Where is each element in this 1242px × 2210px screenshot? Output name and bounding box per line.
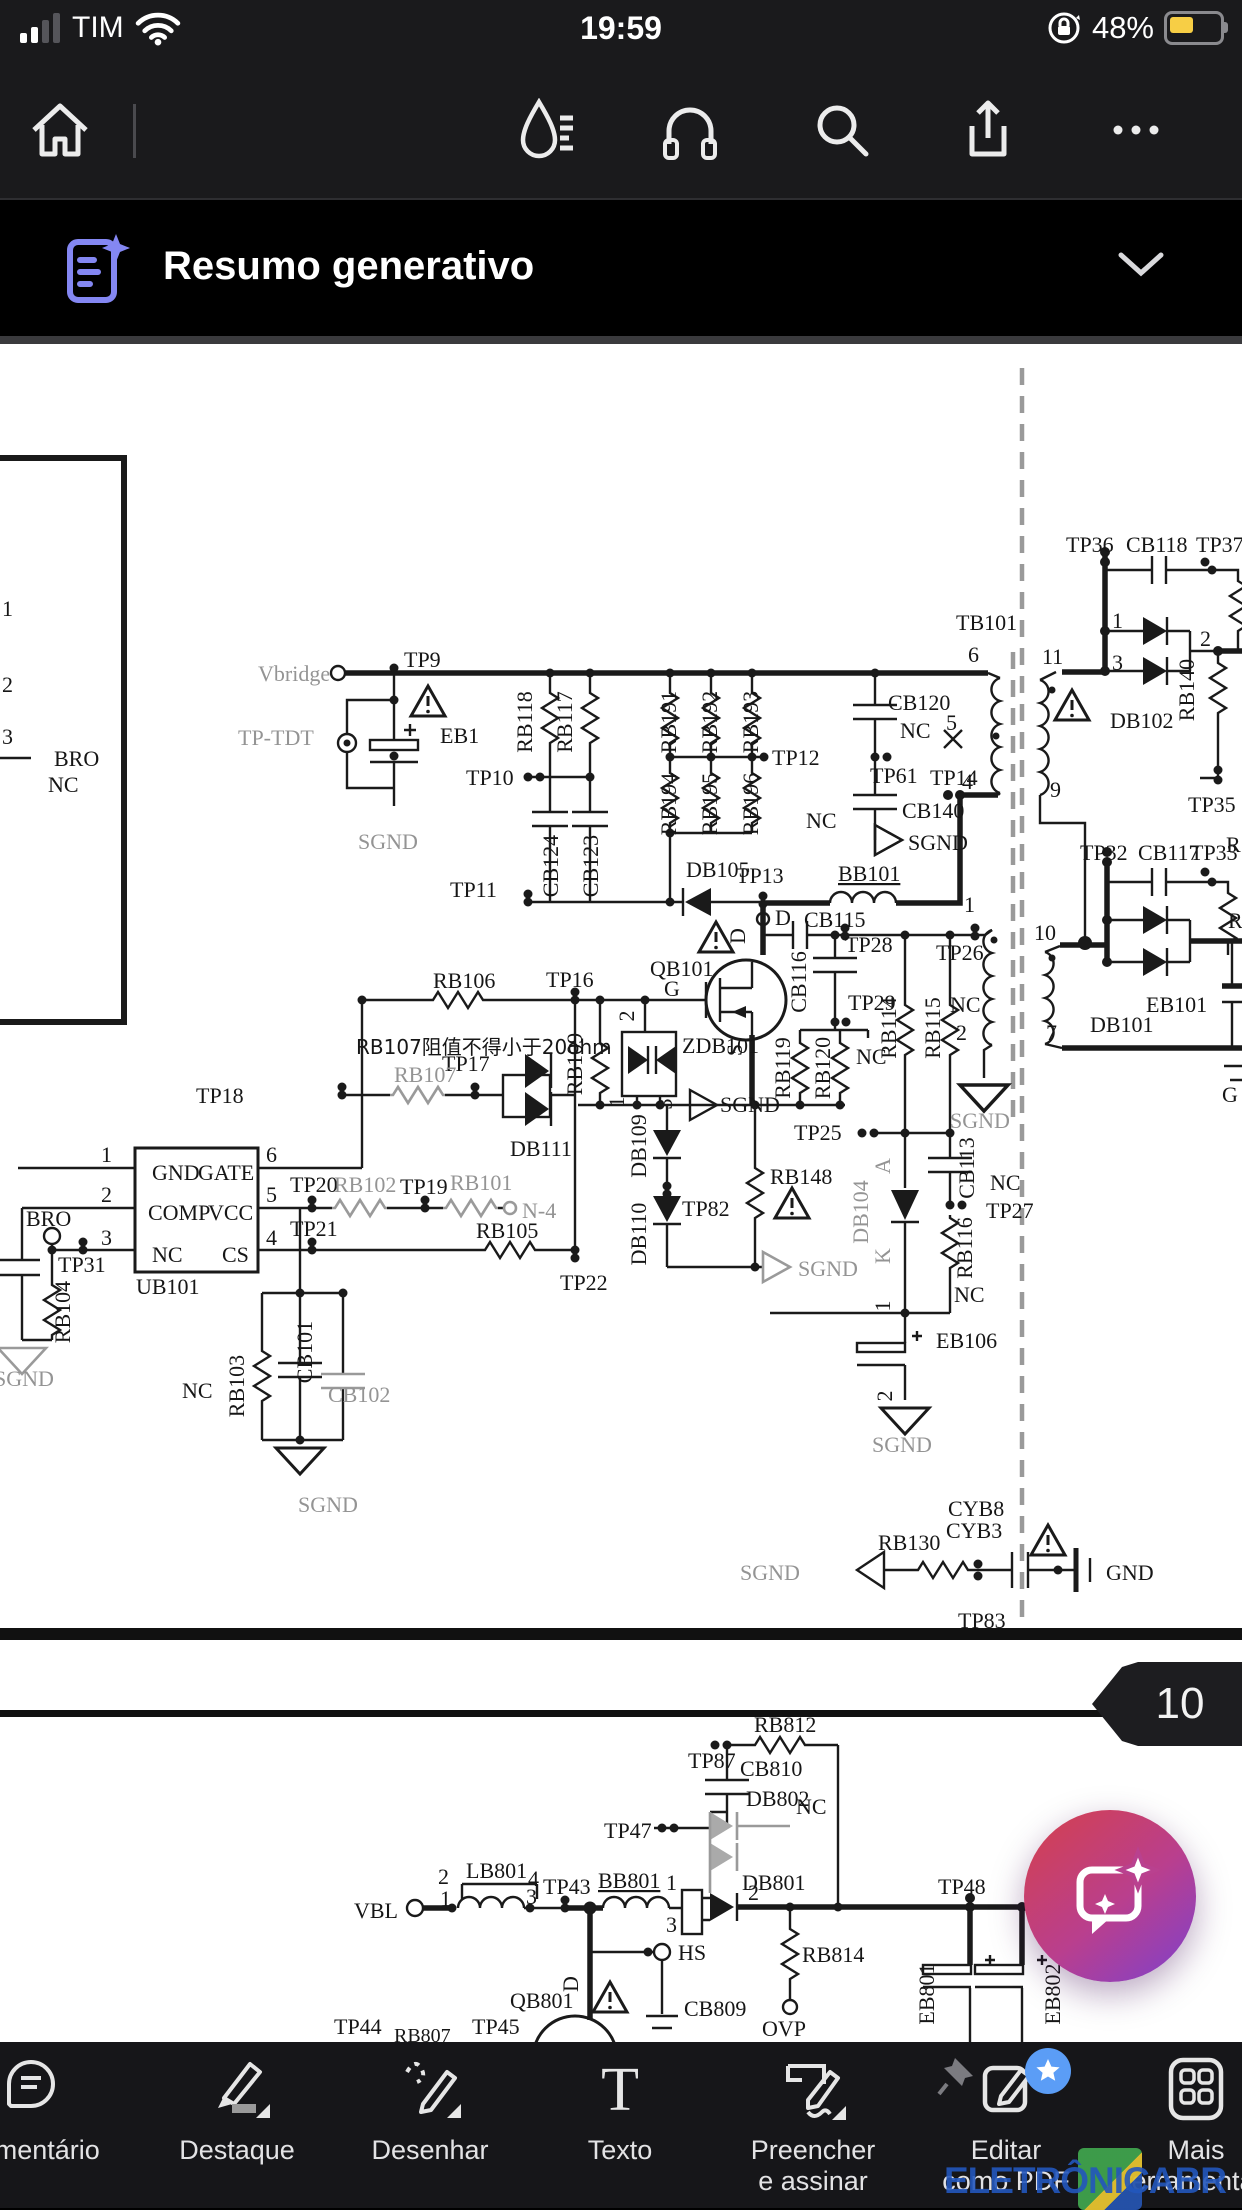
battery-icon bbox=[1164, 11, 1224, 45]
status-bar: TIM 19:59 48% bbox=[0, 0, 1242, 62]
component-label: RB117 bbox=[552, 691, 577, 753]
component-label: SGND bbox=[798, 1256, 858, 1281]
component-label: 1 bbox=[2, 596, 13, 621]
component-label: TP22 bbox=[560, 1270, 608, 1295]
fill-sign-icon bbox=[778, 2052, 848, 2128]
component-label: Vbridge bbox=[258, 661, 330, 686]
component-label: G bbox=[664, 976, 680, 1001]
home-icon[interactable] bbox=[28, 98, 92, 162]
component-label: 1 bbox=[870, 1301, 895, 1312]
component-label: G bbox=[1222, 1082, 1238, 1107]
component-label: TP16 bbox=[546, 967, 594, 992]
more-icon[interactable] bbox=[1104, 98, 1168, 162]
component-label: TP21 bbox=[290, 1216, 338, 1241]
component-label: NC bbox=[48, 772, 79, 797]
page-number: 10 bbox=[1156, 1679, 1205, 1729]
component-label: SGND bbox=[298, 1492, 358, 1517]
component-label: D bbox=[558, 1976, 583, 1992]
top-toolbar bbox=[0, 62, 1242, 198]
component-label: S bbox=[722, 1044, 747, 1056]
tool-label: Texto bbox=[525, 2135, 715, 2166]
component-label: TP28 bbox=[845, 932, 893, 957]
component-label: 11 bbox=[1042, 644, 1063, 669]
search-icon[interactable] bbox=[810, 98, 874, 162]
component-label: VBL bbox=[354, 1898, 398, 1923]
component-label: TP87 bbox=[688, 1748, 736, 1773]
component-label: TP44 bbox=[334, 2014, 382, 2039]
component-label: 2 bbox=[101, 1182, 112, 1207]
svg-text:T: T bbox=[601, 2056, 639, 2124]
component-label: TP83 bbox=[958, 1608, 1006, 1633]
component-label: TP31 bbox=[58, 1252, 106, 1277]
component-label: BRO bbox=[54, 746, 99, 771]
component-label: TP45 bbox=[472, 2014, 520, 2039]
component-label: CB809 bbox=[684, 1996, 746, 2021]
component-label: 1 bbox=[1112, 608, 1123, 633]
component-label: RB191 bbox=[656, 691, 681, 753]
component-label: TP43 bbox=[543, 1874, 591, 1899]
tool-comment[interactable]: Comentário bbox=[0, 2052, 125, 2166]
component-label: 1 bbox=[666, 1870, 677, 1895]
tool-fill-sign[interactable]: Preencher e assinar bbox=[718, 2052, 908, 2197]
component-label: DB111 bbox=[510, 1136, 572, 1161]
component-label: 3 bbox=[526, 1884, 537, 1909]
component-label: RB104 bbox=[50, 1281, 75, 1343]
component-label: 4 bbox=[962, 769, 973, 794]
component-label: RB148 bbox=[770, 1164, 832, 1189]
component-label: TP32 bbox=[1080, 840, 1128, 865]
component-label: 6 bbox=[968, 642, 979, 667]
component-label: BRO bbox=[26, 1206, 71, 1231]
generative-summary-icon bbox=[62, 232, 134, 308]
component-label: RB195 bbox=[697, 773, 722, 835]
component-label: RB103 bbox=[224, 1355, 249, 1417]
liquid-mode-icon[interactable] bbox=[514, 98, 578, 162]
more-tools-grid-icon bbox=[1161, 2052, 1231, 2128]
component-label: DB101 bbox=[1090, 1012, 1154, 1037]
component-label: CB115 bbox=[804, 907, 866, 932]
tool-text[interactable]: T Texto bbox=[525, 2052, 715, 2166]
component-label: SGND bbox=[358, 829, 418, 854]
component-label: OVP bbox=[762, 2016, 806, 2041]
component-label: D bbox=[725, 928, 750, 944]
watermark-text: ELETRÔNICABR bbox=[944, 2160, 1226, 2202]
component-label: D bbox=[775, 905, 791, 930]
component-label: RB101 bbox=[450, 1170, 512, 1195]
component-label: RB812 bbox=[754, 1712, 816, 1737]
component-label: RB116 bbox=[952, 1217, 977, 1279]
component-label: RB807 bbox=[394, 2025, 451, 2042]
generative-summary-banner[interactable]: Resumo generativo bbox=[0, 198, 1242, 336]
component-label: 5 bbox=[946, 710, 957, 735]
component-label: EB101 bbox=[1146, 992, 1207, 1017]
component-label: RB193 bbox=[738, 691, 763, 753]
tool-draw[interactable]: Desenhar bbox=[335, 2052, 525, 2166]
component-label: RB196 bbox=[738, 773, 763, 835]
component-label: RB114 bbox=[876, 997, 901, 1059]
page2-border bbox=[0, 1710, 1242, 1717]
highlighter-icon bbox=[202, 2052, 272, 2128]
component-label: NC bbox=[182, 1378, 213, 1403]
component-label: ZDB101 bbox=[682, 1033, 759, 1058]
component-label: SGND bbox=[908, 830, 968, 855]
component-label: TP48 bbox=[938, 1874, 986, 1899]
component-label: TP27 bbox=[986, 1198, 1034, 1223]
page1-border bbox=[0, 1628, 1242, 1640]
tool-label: Desenhar bbox=[335, 2135, 525, 2166]
component-label: NC bbox=[900, 718, 931, 743]
component-label: GND bbox=[152, 1160, 200, 1185]
component-label: CB118 bbox=[1126, 532, 1188, 557]
component-label: CB810 bbox=[740, 1756, 802, 1781]
component-label: TP20 bbox=[290, 1172, 338, 1197]
component-label: NC bbox=[806, 808, 837, 833]
banner-divider bbox=[0, 336, 1242, 344]
component-label: 2 bbox=[614, 1011, 639, 1022]
component-label: 1 bbox=[604, 1097, 629, 1108]
component-label: CB113 bbox=[954, 1137, 979, 1199]
component-label: SGND bbox=[740, 1560, 800, 1585]
component-label: SGND bbox=[950, 1108, 1010, 1133]
component-label: CB101 bbox=[292, 1321, 317, 1383]
component-label: TP35 bbox=[1188, 792, 1236, 817]
tool-highlight[interactable]: Destaque bbox=[142, 2052, 332, 2166]
component-label: 2 bbox=[748, 1880, 759, 1905]
component-label: TP11 bbox=[450, 877, 497, 902]
component-label: TP9 bbox=[404, 647, 441, 672]
component-label: K bbox=[870, 1248, 895, 1264]
component-label: TP82 bbox=[682, 1196, 730, 1221]
comment-icon bbox=[0, 2052, 65, 2128]
component-label: LB801 bbox=[466, 1858, 527, 1883]
component-label: CB140 bbox=[902, 798, 964, 823]
component-label: UB101 bbox=[136, 1274, 200, 1299]
rotation-lock-icon bbox=[1046, 10, 1082, 46]
component-label: 4 bbox=[266, 1225, 277, 1250]
component-label: TP10 bbox=[466, 765, 514, 790]
component-label: 3 bbox=[1112, 650, 1123, 675]
ai-chat-sparkle-icon bbox=[1058, 1844, 1162, 1948]
component-label: TP37 bbox=[1196, 532, 1242, 557]
component-label: RB194 bbox=[656, 773, 681, 835]
component-label: RB105 bbox=[476, 1218, 538, 1243]
component-label: EB1 bbox=[440, 723, 479, 748]
pin-icon bbox=[937, 2054, 977, 2096]
tool-label: Destaque bbox=[142, 2135, 332, 2166]
component-label: RB102 bbox=[334, 1172, 396, 1197]
component-label: RB140 bbox=[1174, 659, 1199, 721]
component-label: TP13 bbox=[736, 863, 784, 888]
text-icon: T bbox=[585, 2052, 655, 2128]
component-label: RB192 bbox=[697, 691, 722, 753]
component-label: DB104 bbox=[848, 1180, 873, 1244]
component-label: 3 bbox=[101, 1225, 112, 1250]
tool-label-line2: e assinar bbox=[718, 2166, 908, 2197]
app-screen: { "status_bar": {"carrier": "TIM", "time… bbox=[0, 0, 1242, 2208]
battery-percent: 48% bbox=[1092, 10, 1154, 46]
component-label: 3 bbox=[652, 1099, 677, 1110]
component-label: R bbox=[1226, 832, 1241, 857]
component-label: A bbox=[870, 1158, 895, 1174]
tool-label: Comentário bbox=[0, 2135, 125, 2166]
component-label: HS bbox=[678, 1940, 706, 1965]
component-label: 2 bbox=[2, 672, 13, 697]
component-label: BB101 bbox=[838, 861, 900, 886]
component-label: SGND bbox=[872, 1432, 932, 1457]
component-label: CB120 bbox=[888, 690, 950, 715]
component-label: NC bbox=[990, 1170, 1021, 1195]
component-label: TP12 bbox=[772, 745, 820, 770]
component-label: 2 bbox=[1200, 626, 1211, 651]
share-icon[interactable] bbox=[956, 98, 1020, 162]
component-label: NC bbox=[796, 1794, 827, 1819]
component-label: 2 bbox=[956, 1020, 967, 1045]
component-label: RB106 bbox=[433, 968, 495, 993]
component-label: 9 bbox=[1050, 777, 1061, 802]
pdf-schematic-page[interactable]: VbridgeTP9TP-TDTEB1SGNDRB118RB117TP10CB1… bbox=[0, 344, 1242, 2042]
component-label: CB102 bbox=[328, 1382, 390, 1407]
component-label: CB124 bbox=[538, 835, 563, 897]
component-label: 7 bbox=[1046, 1020, 1057, 1045]
component-label: CB123 bbox=[578, 835, 603, 897]
component-label: 6 bbox=[266, 1142, 277, 1167]
component-label: NC bbox=[954, 1282, 985, 1307]
component-label: DB102 bbox=[1110, 708, 1174, 733]
component-label: 10 bbox=[1034, 920, 1056, 945]
component-label: TP18 bbox=[196, 1083, 244, 1108]
component-label: DB110 bbox=[626, 1203, 651, 1266]
component-label: TP19 bbox=[400, 1174, 448, 1199]
component-label: EB106 bbox=[936, 1328, 997, 1353]
component-label: RB119 bbox=[770, 1037, 795, 1099]
component-label: RB107 bbox=[394, 1062, 456, 1087]
premium-star-badge bbox=[1025, 2048, 1071, 2094]
component-label: TP26 bbox=[936, 940, 984, 965]
component-label: TP-TDT bbox=[238, 725, 314, 750]
pdf-paper bbox=[0, 344, 1242, 2042]
component-label: RB115 bbox=[920, 997, 945, 1059]
chevron-down-icon[interactable] bbox=[1118, 252, 1164, 278]
component-label: 3 bbox=[666, 1912, 677, 1937]
component-label: 1 bbox=[440, 1886, 451, 1911]
component-label: TP47 bbox=[604, 1818, 652, 1843]
component-label: DB109 bbox=[626, 1114, 651, 1178]
component-label: GND bbox=[1106, 1560, 1154, 1585]
component-label: RB814 bbox=[802, 1942, 864, 1967]
component-label: 2 bbox=[872, 1391, 897, 1402]
component-label: TB101 bbox=[956, 610, 1017, 635]
component-label: SGND bbox=[0, 1366, 54, 1391]
toolbar-divider bbox=[133, 104, 136, 158]
component-label: EB801 bbox=[914, 1963, 939, 2024]
component-label: RB109 bbox=[562, 1033, 587, 1095]
pencil-draw-icon bbox=[395, 2052, 465, 2128]
component-label: TP61 bbox=[870, 763, 918, 788]
component-label: RB120 bbox=[810, 1037, 835, 1099]
component-label: COMP bbox=[148, 1200, 210, 1225]
component-label: 3 bbox=[2, 724, 13, 749]
component-label: NC bbox=[152, 1242, 183, 1267]
component-label: CYB3 bbox=[946, 1518, 1002, 1543]
component-label: GATE bbox=[198, 1160, 254, 1185]
component-label: CB116 bbox=[786, 951, 811, 1013]
component-label: R bbox=[1228, 908, 1242, 933]
component-label: BB801 bbox=[598, 1868, 660, 1893]
tool-label: Preencher bbox=[718, 2135, 908, 2166]
ai-assistant-fab[interactable] bbox=[1024, 1810, 1196, 1982]
read-aloud-icon[interactable] bbox=[658, 98, 722, 162]
component-label: 5 bbox=[266, 1182, 277, 1207]
banner-title: Resumo generativo bbox=[163, 244, 534, 289]
component-label: QB101 bbox=[650, 956, 714, 981]
component-label: RB130 bbox=[878, 1530, 940, 1555]
component-label: TP25 bbox=[794, 1120, 842, 1145]
component-label: CS bbox=[222, 1242, 249, 1267]
component-label: EB802 bbox=[1040, 1963, 1065, 2024]
component-label: NC bbox=[950, 992, 981, 1017]
component-label: 1 bbox=[964, 892, 975, 917]
component-label: VCC bbox=[208, 1200, 253, 1225]
component-label: RB118 bbox=[512, 691, 537, 753]
component-label: TP36 bbox=[1066, 532, 1114, 557]
component-label: 1 bbox=[101, 1142, 112, 1167]
